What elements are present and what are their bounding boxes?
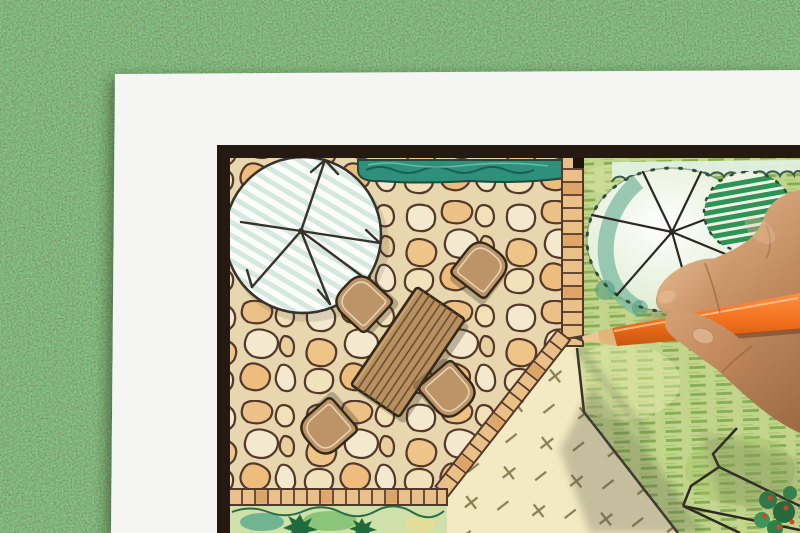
planting-bed <box>229 505 447 533</box>
photo-garden-plan-drawing <box>0 0 800 533</box>
hedge-top <box>358 160 566 183</box>
scene-canvas <box>0 0 800 533</box>
brick-edging-vertical <box>562 150 584 346</box>
brick-edging-horizontal <box>229 489 447 505</box>
